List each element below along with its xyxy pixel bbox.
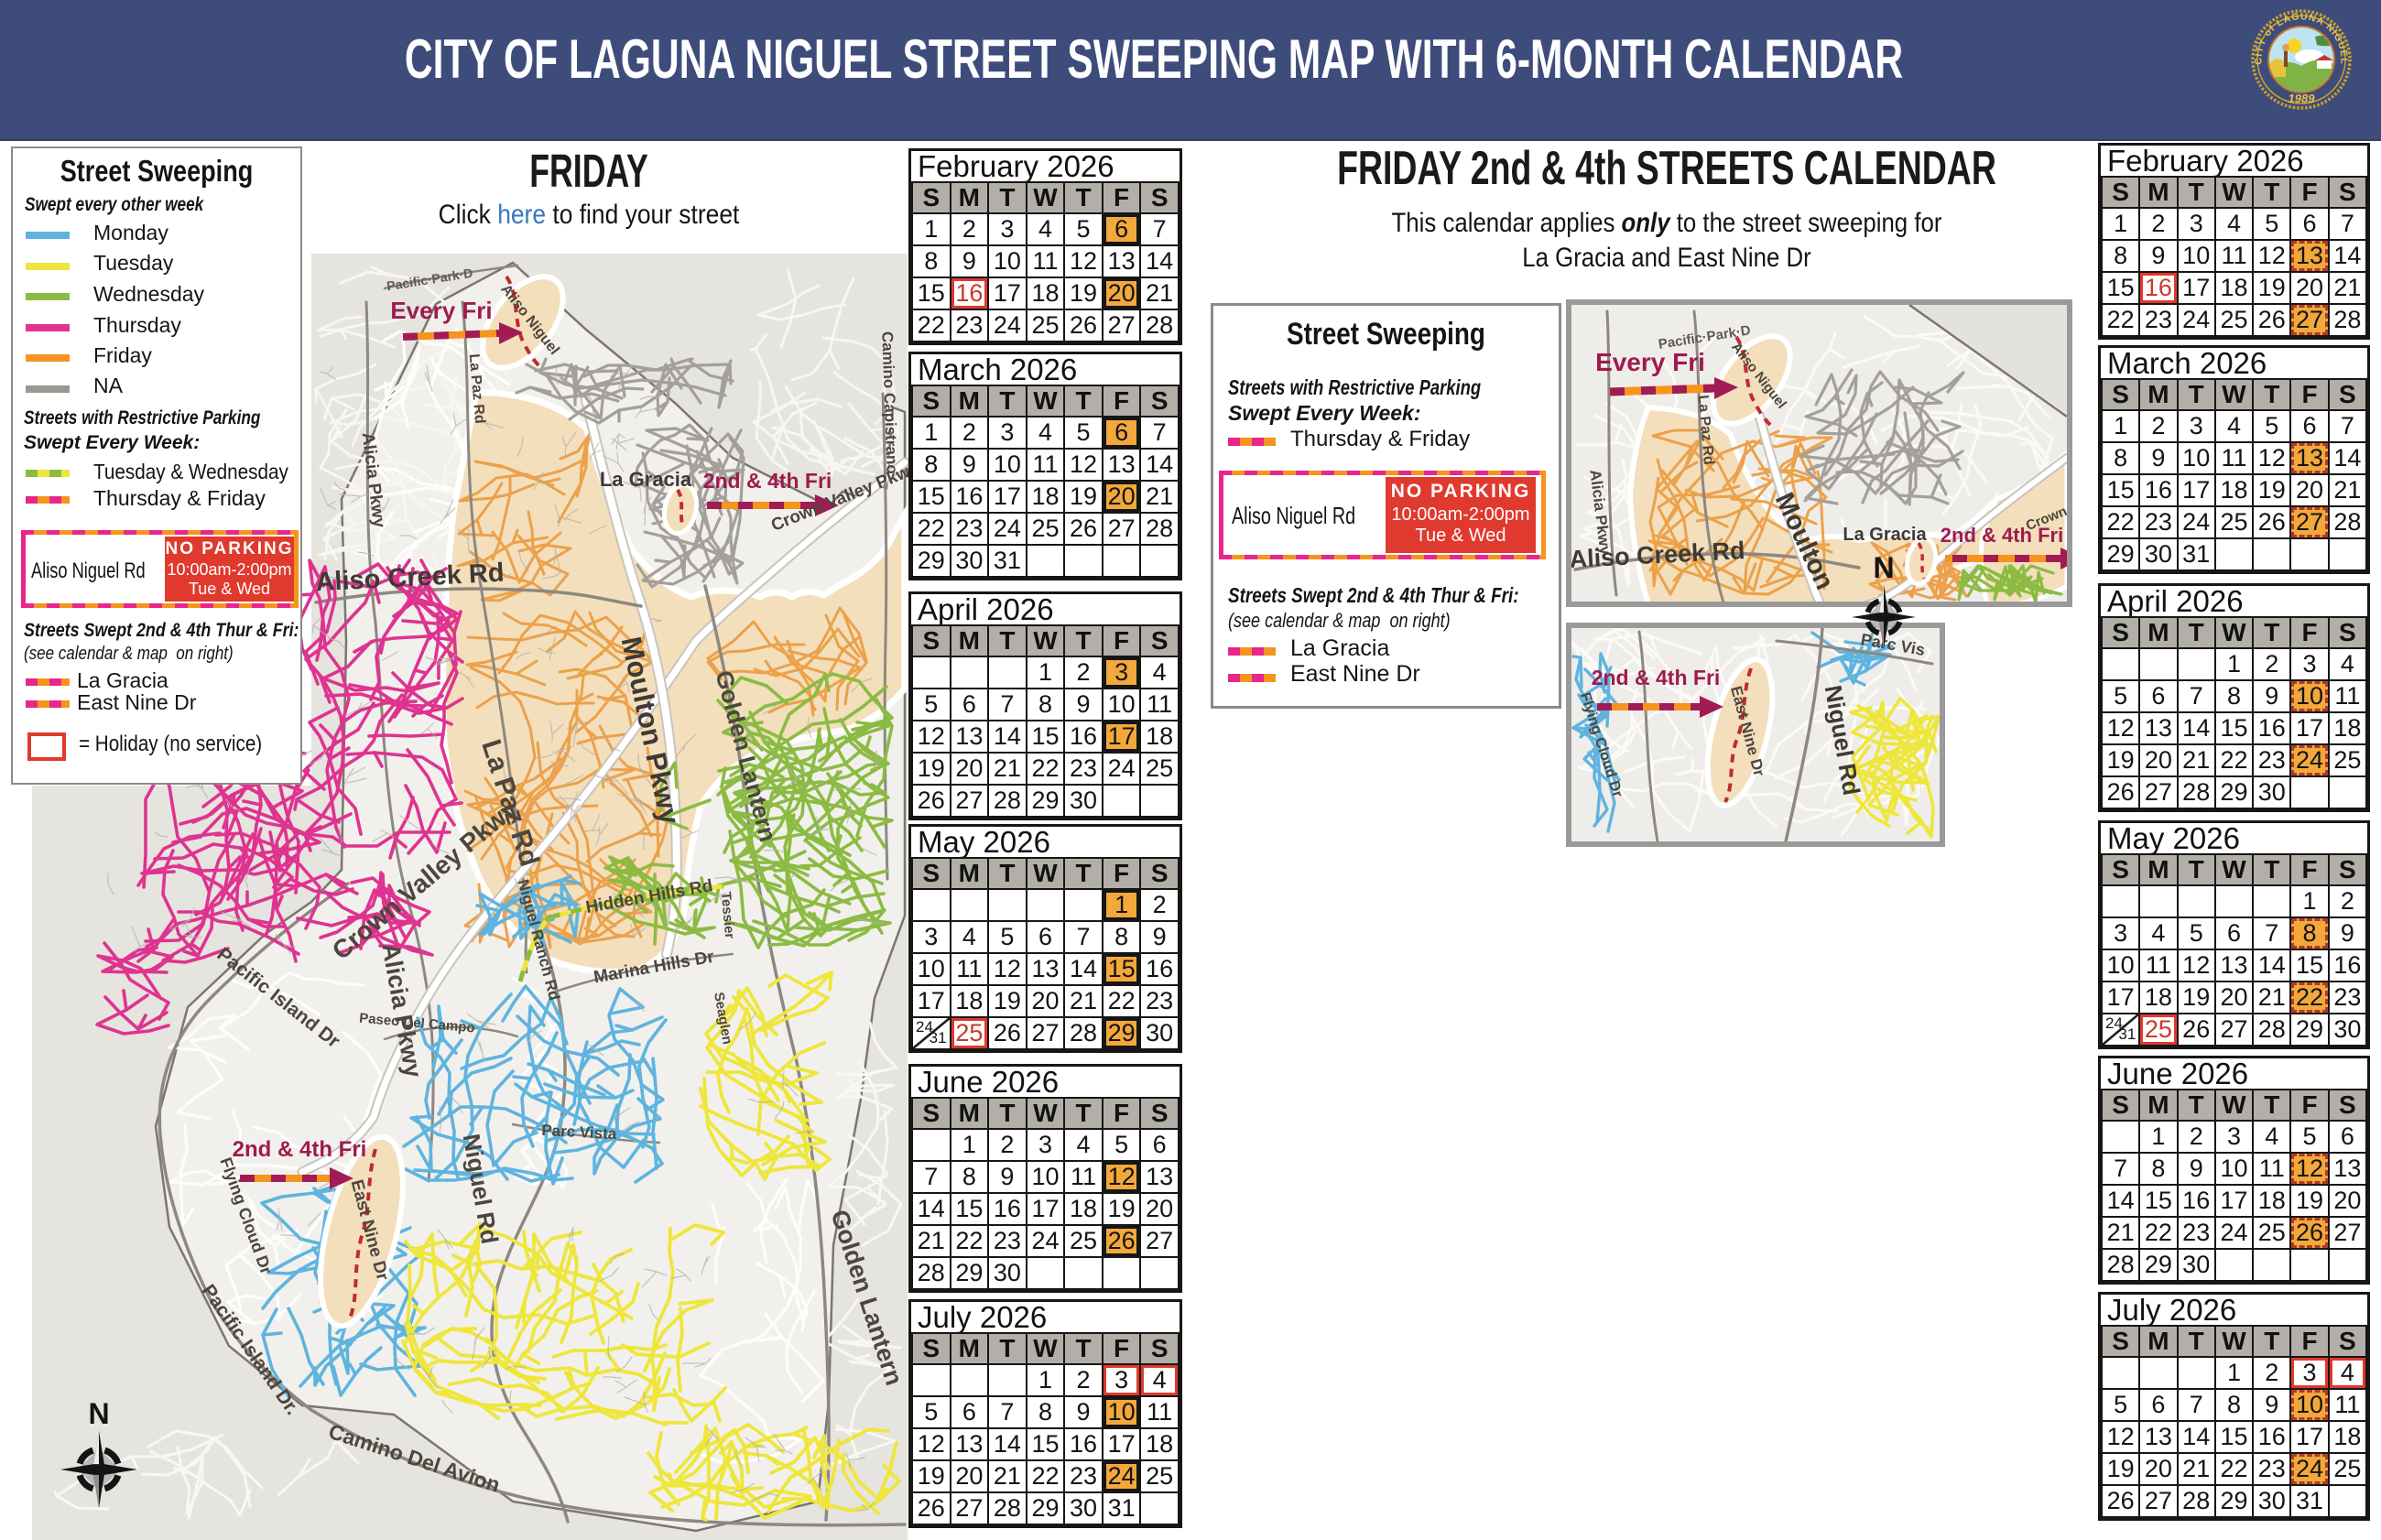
svg-text:2nd & 4th Fri: 2nd & 4th Fri: [703, 469, 832, 493]
svg-text:Every Fri: Every Fri: [1595, 348, 1705, 376]
svg-text:1989: 1989: [2289, 92, 2316, 105]
svg-text:2nd & 4th Fri: 2nd & 4th Fri: [1592, 666, 1721, 689]
svg-text:Every Fri: Every Fri: [390, 297, 492, 324]
svg-text:La Gracia: La Gracia: [1843, 525, 1927, 545]
svg-text:La Gracia: La Gracia: [600, 468, 692, 491]
svg-text:N: N: [88, 1397, 109, 1430]
svg-text:N: N: [1873, 551, 1894, 584]
svg-text:2nd & 4th Fri: 2nd & 4th Fri: [233, 1137, 367, 1162]
